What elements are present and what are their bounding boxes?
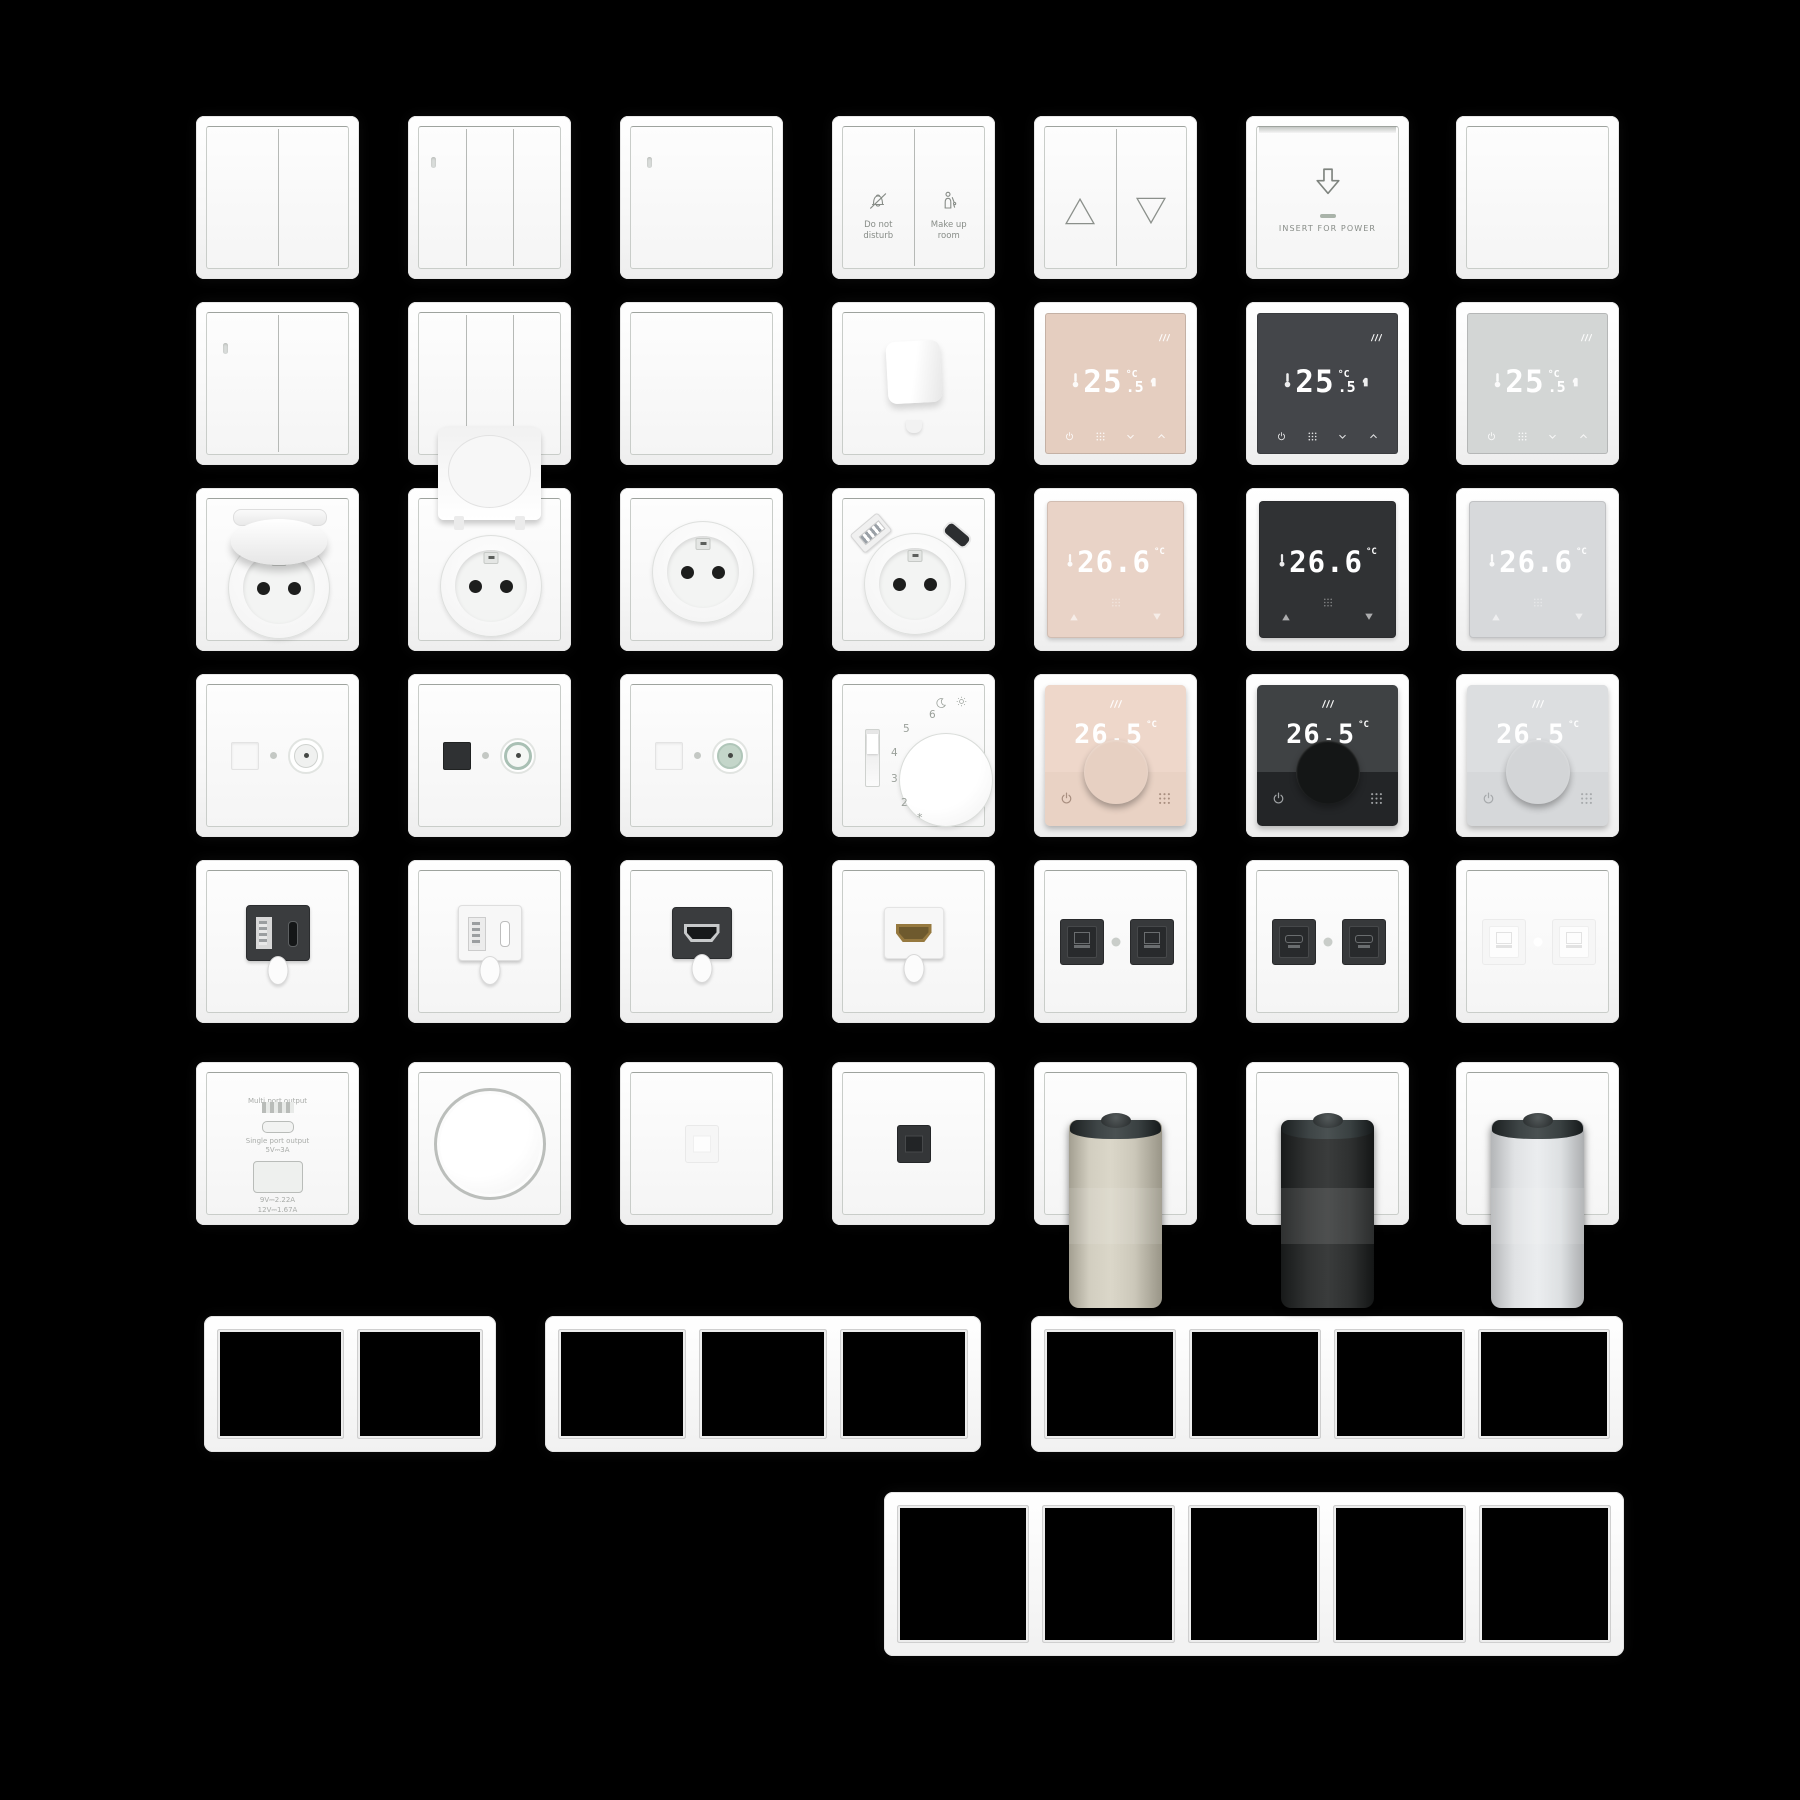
usb-outlet-white [408, 860, 571, 1023]
spacer-dot [482, 752, 489, 759]
coax-center-pin [516, 753, 521, 758]
touch-thermostat-beige: 25°C.5 [1034, 302, 1197, 465]
menu-grid-icon [1307, 427, 1318, 446]
display-thermostat-beige: 26.6°C [1034, 488, 1197, 651]
menu-grid-icon [1322, 593, 1333, 612]
triangle-up-icon [1045, 192, 1116, 234]
heating-icon [1530, 694, 1546, 713]
touch-button-bar [1064, 429, 1167, 443]
rocker-divider [278, 129, 279, 266]
temperature-minor: °C.5 [1548, 370, 1566, 395]
valve-cylinder-beige [1069, 1120, 1162, 1308]
usb-a-port [253, 1161, 303, 1193]
triangle-down-icon [1152, 607, 1162, 626]
sun-icon [955, 693, 968, 712]
cover-plate-face [206, 312, 349, 455]
thermometer-icon [1071, 372, 1080, 392]
frame-window [1042, 1505, 1174, 1643]
cover-plate-face [206, 684, 349, 827]
menu-grid-icon [1579, 791, 1594, 810]
cover-plate-face: INSERT FOR POWER [1256, 126, 1399, 269]
touch-button-bar [1276, 429, 1379, 443]
usb-a-port [256, 917, 272, 949]
rj11-glyph-dots [1358, 945, 1370, 948]
frame-4gang [1031, 1316, 1623, 1452]
led-indicator [223, 343, 228, 354]
socket-ground-clip [696, 538, 711, 550]
switch-2gang [196, 116, 359, 279]
thermostat-module: 26.5°C [1257, 685, 1398, 826]
coax-center-pin [304, 753, 309, 758]
control-knob [1296, 740, 1360, 804]
temperature-minor: °C.5 [1126, 370, 1144, 395]
data-port-white [655, 742, 683, 770]
temperature-unit: °C [1366, 547, 1377, 557]
media-outlet-black-port [408, 674, 571, 837]
socket-lid-closed [231, 519, 327, 565]
temperature-fraction: .5 [1126, 380, 1144, 395]
cover-plate-face [1466, 126, 1609, 269]
power-icon [1271, 791, 1286, 810]
coax-connector [712, 738, 748, 774]
dial-number: 4 [891, 747, 898, 759]
socket-pin-hole-left [257, 582, 270, 595]
power-icon [1064, 427, 1075, 446]
keystone-module-left [1482, 919, 1526, 965]
frame-window [217, 1329, 344, 1439]
chevron-up-icon [1156, 427, 1167, 446]
bell-off-icon [843, 189, 914, 217]
usb-a-contacts [859, 520, 886, 545]
mini-module-white [685, 1125, 719, 1163]
card-label: INSERT FOR POWER [1257, 224, 1398, 233]
power-icon [1276, 427, 1287, 446]
usb-a-contacts [472, 922, 480, 946]
rj45-glyph [1566, 932, 1582, 944]
hdmi-port-outer [896, 924, 932, 942]
dial-number: 2 [901, 797, 908, 809]
data-port-black [443, 742, 471, 770]
socket-schuko [620, 488, 783, 651]
frame-window [1333, 1505, 1465, 1643]
mini-module-black [897, 1125, 931, 1163]
valve-cap-dome [1101, 1113, 1131, 1128]
setting-slider [865, 729, 880, 787]
keystone-module-right [1342, 919, 1386, 965]
temperature-unit: °C [1568, 720, 1579, 730]
rj45-glyph [1144, 932, 1160, 944]
temperature-value: 26.6 [1499, 545, 1573, 579]
temperature-readout: 26.6°C [1259, 545, 1396, 585]
module-pull-tab [479, 956, 500, 985]
menu-grid-icon [1532, 593, 1543, 612]
spacer-dot [694, 752, 701, 759]
menu-grid-icon [1095, 427, 1106, 446]
frame-window [1478, 1329, 1610, 1439]
chevron-up-icon [1368, 427, 1379, 446]
display-thermostat-gray: 26.6°C [1456, 488, 1619, 651]
valve-cap-dome [1523, 1113, 1553, 1128]
hdmi-module [672, 907, 732, 959]
hotel-right-label: Make up room [914, 220, 985, 242]
mini-module-port [693, 1135, 711, 1152]
frost-symbol: * [917, 811, 923, 824]
coax-inner [294, 744, 318, 768]
hotel-service-switch: Do not disturbMake up room [832, 116, 995, 279]
mini-module-port [905, 1135, 923, 1152]
rocker-divider [278, 315, 279, 452]
socket-well [879, 548, 951, 620]
thermometer-icon [1278, 553, 1286, 572]
frame-window [1044, 1329, 1176, 1439]
rj45-glyph-base [1074, 945, 1090, 948]
heating-icon [1157, 327, 1172, 346]
frame-2gang [204, 1316, 496, 1452]
temperature-value: 25 [1083, 364, 1122, 400]
rj11-glyph [1285, 935, 1303, 943]
heating-icon [1320, 694, 1336, 713]
triangle-down-icon [1364, 607, 1374, 626]
temperature-fraction: .5 [1338, 380, 1356, 395]
socket-pin-hole-right [288, 582, 301, 595]
frame-window [357, 1329, 484, 1439]
dimmer-knob [440, 1094, 540, 1194]
frame-window [699, 1329, 827, 1439]
coax-center-pin [728, 753, 733, 758]
menu-grid-icon [1517, 427, 1528, 446]
usb-module [246, 905, 310, 961]
dial-number: 5 [903, 723, 910, 735]
knob-thermostat-pink: 26.5°C [1034, 674, 1197, 837]
cover-plate-face [630, 870, 773, 1013]
phone-outlet-black [1246, 860, 1409, 1023]
usb-a-contacts [262, 1102, 294, 1113]
cover-plate-face [630, 1072, 773, 1215]
power-icon [1481, 791, 1496, 810]
socket-lid-flap [438, 426, 541, 520]
cover-plate-face [842, 870, 985, 1013]
usb-a-port [468, 917, 486, 951]
thermometer-icon [1066, 553, 1074, 572]
touch-hand-icon [1359, 373, 1372, 392]
rj45-jack [1489, 926, 1519, 958]
socket-ring [440, 535, 542, 637]
cover-plate-face [418, 870, 561, 1013]
rocker-divider [466, 129, 467, 266]
socket-pin-hole-right [712, 566, 725, 579]
cover-plate-face [842, 498, 985, 641]
valve-cylinder-black [1281, 1120, 1374, 1308]
coax-inner [504, 742, 532, 770]
valve-label-band [1491, 1188, 1584, 1244]
cover-plate-face [630, 126, 773, 269]
cover-plate-face [1256, 870, 1399, 1013]
socket-pin-hole-right [924, 578, 937, 591]
temperature-minor: °C.5 [1338, 370, 1356, 395]
spacer-dot [270, 752, 277, 759]
temperature-value: 25 [1505, 364, 1544, 400]
thermostat-touch-screen: 25°C.5 [1257, 313, 1398, 454]
led-indicator [647, 157, 652, 168]
triangle-up-icon [1069, 607, 1079, 626]
dial-thermostat: 65432* [832, 674, 995, 837]
socket-ground-slot [912, 554, 918, 557]
socket-pin-hole-left [893, 578, 906, 591]
rj11-glyph-dots [1288, 945, 1300, 948]
socket-lid-hinge-right [515, 516, 525, 530]
hdmi-port-inner [687, 927, 717, 939]
socket-well [667, 536, 739, 608]
chevron-down-icon [1547, 427, 1558, 446]
media-outlet-white [196, 674, 359, 837]
cable-outlet [832, 302, 995, 465]
frame-window [1479, 1505, 1611, 1643]
module-pull-tab [267, 956, 288, 985]
keystone-module-left [1060, 919, 1104, 965]
charger-line-12v: 12V⎓1.67A [207, 1206, 348, 1216]
socket-ground-slot [700, 542, 706, 545]
cover-plate-face [418, 126, 561, 269]
hdmi-port-outer [684, 924, 720, 942]
temperature-readout: 25°C.5 [1046, 361, 1185, 403]
menu-grid-icon [1110, 593, 1121, 612]
power-icon [1059, 791, 1074, 810]
hotel-left-label: Do not disturb [843, 220, 914, 242]
keystone-module-left [1272, 919, 1316, 965]
rj11-glyph [1355, 935, 1373, 943]
rj45-glyph-base [1496, 945, 1512, 948]
thermostat-display: 26.6°C [1047, 501, 1184, 638]
temperature-unit: °C [1358, 720, 1369, 730]
cover-plate-face [630, 684, 773, 827]
socket-ring [652, 521, 754, 623]
triangle-up-icon [1491, 607, 1501, 626]
rj45-glyph-base [1566, 945, 1582, 948]
temperature-value: 25 [1295, 364, 1334, 400]
frame-window [1188, 1505, 1320, 1643]
usb-c-port [500, 921, 510, 947]
thermostat-touch-screen: 25°C.5 [1045, 313, 1186, 454]
cover-plate-face [206, 498, 349, 641]
socket-ground-clip [908, 550, 923, 562]
module-pull-tab [691, 954, 712, 983]
hdmi-outlet-black [620, 860, 783, 1023]
switch-2gang-led [196, 302, 359, 465]
socket-pin-hole-right [500, 580, 513, 593]
valve-cylinder-white [1491, 1120, 1584, 1308]
thermostat-touch-screen: 25°C.5 [1467, 313, 1608, 454]
socket-lid-hinge-left [454, 516, 464, 530]
dial-number: 3 [891, 773, 898, 785]
rj45-glyph [1496, 932, 1512, 944]
frame-window [1334, 1329, 1466, 1439]
slider-handle [867, 734, 878, 754]
usb-c-port [262, 1121, 294, 1133]
temperature-value: 26.6 [1077, 545, 1151, 579]
control-knob [1506, 740, 1570, 804]
key-card-holder: INSERT FOR POWER [1246, 116, 1409, 279]
socket-ground-clip [484, 552, 499, 564]
connector-row [207, 736, 348, 776]
thermometer-icon [1493, 372, 1502, 392]
blank-cover [620, 302, 783, 465]
socket-pin-hole-left [469, 580, 482, 593]
socket-hinged-lid [196, 488, 359, 651]
card-led [1320, 214, 1336, 218]
charger-line-single-rating: 5V⎓3A [207, 1146, 348, 1156]
triangle-down-icon [1574, 607, 1584, 626]
temperature-readout: 25°C.5 [1468, 361, 1607, 403]
touch-button-bar [1486, 429, 1589, 443]
cover-plate-face [630, 498, 773, 641]
frame-window [1189, 1329, 1321, 1439]
temperature-unit: °C [1576, 547, 1587, 557]
cover-plate-face [1466, 870, 1609, 1013]
usb-a-contacts [259, 921, 267, 945]
cover-plate-face [1044, 870, 1187, 1013]
socket-ground-slot [488, 556, 494, 559]
coax-connector [500, 738, 536, 774]
led-indicator [431, 157, 436, 168]
rj45-jack [1559, 926, 1589, 958]
module-outlet-black [832, 1062, 995, 1225]
touch-hand-icon [1147, 373, 1160, 392]
media-outlet-teal [620, 674, 783, 837]
module-pull-tab [903, 954, 924, 983]
usb-module [458, 905, 522, 961]
chevron-up-icon [1578, 427, 1589, 446]
thermostat-module: 26.5°C [1045, 685, 1186, 826]
spacer-dot [1533, 937, 1542, 946]
thermostat-module: 26.5°C [1467, 685, 1608, 826]
touch-hand-icon [1569, 373, 1582, 392]
rj45-jack [1137, 926, 1167, 958]
socket-well [455, 550, 527, 622]
socket-pin-hole-left [681, 566, 694, 579]
spacer-dot [1111, 937, 1120, 946]
heating-icon [1108, 694, 1124, 713]
switch-1gang-led [620, 116, 783, 279]
coax-inner [717, 743, 743, 769]
thermometer-icon [1488, 553, 1496, 572]
chevron-down-icon [1125, 427, 1136, 446]
cover-plate-face [1044, 126, 1187, 269]
rotary-dimmer [408, 1062, 571, 1225]
usb-charger-outlet: Multi port output5V⎓4ASingle port output… [196, 1062, 359, 1225]
switch-3gang-led [408, 116, 571, 279]
charger-line-single: Single port output [207, 1137, 348, 1147]
cover-plate-face [418, 1072, 561, 1215]
temperature-unit: °C [1146, 720, 1157, 730]
switch-1gang-plain [1456, 116, 1619, 279]
touch-thermostat-gray: 25°C.5 [1456, 302, 1619, 465]
valve-label-band [1281, 1188, 1374, 1244]
ethernet-outlet-black [1034, 860, 1197, 1023]
valve-label-band [1069, 1188, 1162, 1244]
frame-5gang [884, 1492, 1624, 1656]
frame-window [558, 1329, 686, 1439]
connector-row [419, 736, 560, 776]
rj11-jack [1279, 926, 1309, 958]
rj45-glyph [1074, 932, 1090, 944]
menu-grid-icon [1157, 791, 1172, 810]
keystone-module-right [1552, 919, 1596, 965]
frame-window [897, 1505, 1029, 1643]
frame-3gang [545, 1316, 981, 1452]
temperature-unit: °C [1154, 547, 1165, 557]
control-knob [1084, 740, 1148, 804]
shutter-switch [1034, 116, 1197, 279]
temperature-fraction: .5 [1548, 380, 1566, 395]
heating-icon [1369, 327, 1384, 346]
frame-window [840, 1329, 968, 1439]
cover-plate-face [842, 312, 985, 455]
dial-number: 6 [929, 709, 936, 721]
charger-label-stack: Multi port output5V⎓4ASingle port output… [207, 1097, 348, 1216]
display-thermostat-black: 26.6°C [1246, 488, 1409, 651]
touch-thermostat-black: 25°C.5 [1246, 302, 1409, 465]
temperature-value: 26.6 [1289, 545, 1363, 579]
rj11-jack [1349, 926, 1379, 958]
menu-grid-icon [1369, 791, 1384, 810]
valve-cap-dome [1313, 1113, 1343, 1128]
thermostat-display: 26.6°C [1259, 501, 1396, 638]
connector-row [631, 736, 772, 776]
spacer-dot [1323, 937, 1332, 946]
thermometer-icon [1283, 372, 1292, 392]
power-icon [1486, 427, 1497, 446]
temperature-readout: 26.6°C [1047, 545, 1184, 585]
cable-spout-nub [906, 420, 922, 433]
keystone-module-right [1130, 919, 1174, 965]
ethernet-outlet-white [1456, 860, 1619, 1023]
housekeeping-icon [914, 189, 985, 217]
socket-usb-charging [832, 488, 995, 651]
triangle-up-icon [1281, 607, 1291, 626]
chevron-down-icon [1337, 427, 1348, 446]
cover-plate-face: 65432* [842, 684, 985, 827]
card-slot-shadow [1259, 127, 1396, 133]
charger-line-9v: 9V⎓2.22A [207, 1196, 348, 1206]
usb-c-port [288, 921, 298, 947]
rj45-jack [1067, 926, 1097, 958]
hdmi-outlet-white [832, 860, 995, 1023]
socket-ring [864, 533, 966, 635]
temperature-readout: 26.6°C [1469, 545, 1606, 585]
hdmi-port-inner [899, 927, 929, 939]
moon-icon [935, 694, 947, 713]
cover-plate-face [630, 312, 773, 455]
cover-plate-face: Multi port output5V⎓4ASingle port output… [206, 1072, 349, 1215]
cover-plate-face [418, 684, 561, 827]
cover-plate-face [206, 126, 349, 269]
dial-knob [899, 733, 993, 827]
coax-connector [288, 738, 324, 774]
thermostat-display: 26.6°C [1469, 501, 1606, 638]
knob-thermostat-gray: 26.5°C [1456, 674, 1619, 837]
rocker-divider [513, 129, 514, 266]
rj45-glyph-base [1144, 945, 1160, 948]
arrow-down-icon [1257, 164, 1398, 204]
triangle-down-icon [1116, 192, 1187, 234]
hdmi-module [884, 907, 944, 959]
socket-lid-recess [448, 435, 531, 508]
usb-outlet-black [196, 860, 359, 1023]
cover-plate-face: Do not disturbMake up room [842, 126, 985, 269]
knob-thermostat-black: 26.5°C [1246, 674, 1409, 837]
module-outlet-white [620, 1062, 783, 1225]
cover-plate-face [842, 1072, 985, 1215]
